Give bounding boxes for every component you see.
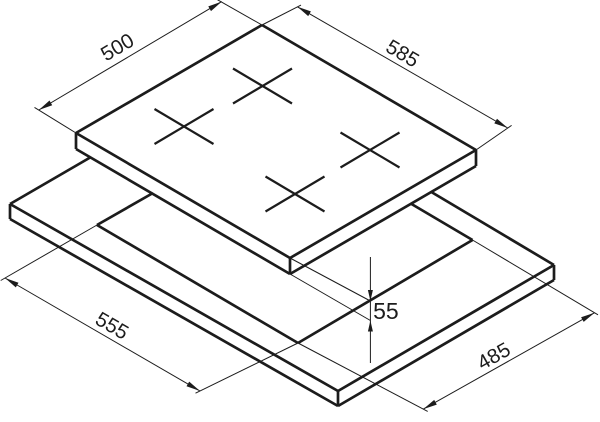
svg-text:585: 585 xyxy=(382,35,423,72)
svg-text:485: 485 xyxy=(473,338,514,375)
svg-text:55: 55 xyxy=(373,298,399,324)
svg-text:555: 555 xyxy=(91,308,132,345)
svg-text:500: 500 xyxy=(97,29,138,66)
